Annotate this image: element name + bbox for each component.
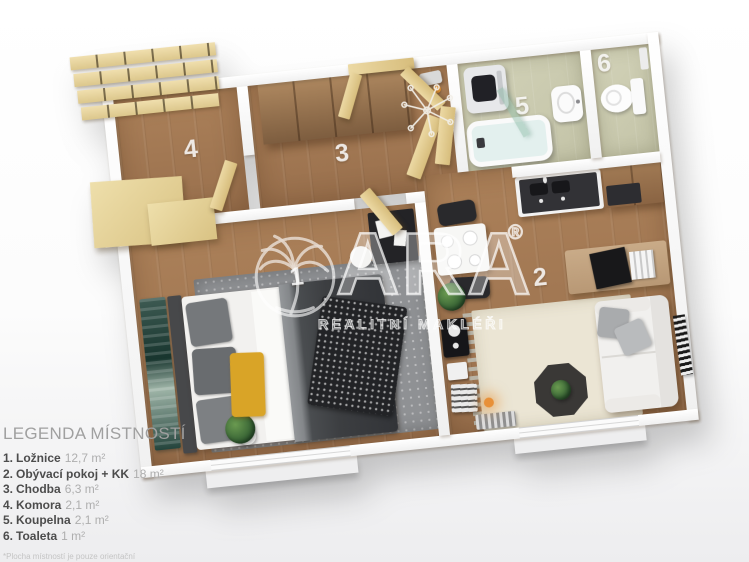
legend-item-area: 1 m² bbox=[61, 529, 85, 543]
watermark-tagline: REALITNÍ MAKLÉŘI bbox=[318, 316, 506, 332]
kitchen-sink-basin bbox=[551, 180, 570, 194]
legend-item-number: 4. bbox=[3, 498, 13, 512]
legend-item: 2.Obývací pokoj + KK18 m² bbox=[3, 467, 243, 483]
room-label-toilet: 6 bbox=[596, 49, 613, 79]
bathtub-fitting bbox=[476, 138, 485, 149]
desk-monitor bbox=[589, 247, 632, 290]
legend-item-area: 2,1 m² bbox=[75, 513, 109, 527]
legend-item: 1.Ložnice12,7 m² bbox=[3, 451, 243, 467]
ceiling-light-icon bbox=[396, 80, 458, 142]
bed-pillow-yellow bbox=[230, 352, 266, 417]
legend-title: LEGENDA MÍSTNOSTÍ bbox=[3, 424, 243, 444]
legend-item-name: Komora bbox=[16, 498, 61, 512]
legend-item-name: Ložnice bbox=[16, 451, 61, 465]
legend-rows: 1.Ložnice12,7 m² 2.Obývací pokoj + KK18 … bbox=[3, 451, 243, 544]
washing-machine-door bbox=[471, 74, 498, 102]
legend-item-name: Chodba bbox=[16, 482, 61, 496]
legend-item: 5.Koupelna2,1 m² bbox=[3, 513, 243, 529]
legend-item-area: 18 m² bbox=[133, 467, 164, 481]
watermark: ARA ® REALITNÍ MAKLÉŘI bbox=[232, 220, 552, 352]
bathroom-sink-bowl bbox=[556, 91, 576, 115]
room-label-storage: 4 bbox=[182, 135, 199, 165]
room-label-hallway: 3 bbox=[334, 139, 351, 169]
watermark-brand: ARA bbox=[336, 220, 533, 308]
legend-item-area: 6,3 m² bbox=[65, 482, 99, 496]
palm-logo-icon bbox=[246, 226, 344, 324]
bathtub bbox=[466, 114, 554, 169]
bed-pillow bbox=[185, 297, 233, 347]
legend-item-area: 2,1 m² bbox=[65, 498, 99, 512]
legend-item-number: 5. bbox=[3, 513, 13, 527]
storage-box bbox=[147, 197, 217, 246]
legend-item-name: Toaleta bbox=[16, 529, 57, 543]
legend-item-name: Obývací pokoj + KK bbox=[16, 467, 129, 481]
legend-item: 6.Toaleta1 m² bbox=[3, 529, 243, 545]
legend-item-area: 12,7 m² bbox=[65, 451, 106, 465]
toilet-bowl-inner bbox=[605, 89, 623, 107]
kitchen-cabinet-front bbox=[606, 183, 642, 206]
legend-item-number: 3. bbox=[3, 482, 13, 496]
kitchen-sink-basin bbox=[529, 182, 548, 196]
legend-item: 4.Komora2,1 m² bbox=[3, 498, 243, 514]
legend-item-name: Koupelna bbox=[16, 513, 71, 527]
legend-item: 3.Chodba6,3 m² bbox=[3, 482, 243, 498]
desk-books bbox=[629, 250, 656, 280]
legend-item-number: 1. bbox=[3, 451, 13, 465]
legend-note: *Plocha místností je pouze orientační bbox=[3, 552, 243, 561]
magazine-rack bbox=[451, 384, 478, 413]
room-legend: LEGENDA MÍSTNOSTÍ 1.Ložnice12,7 m² 2.Obý… bbox=[3, 424, 243, 561]
registered-trademark-icon: ® bbox=[508, 222, 523, 245]
media-box bbox=[447, 362, 469, 381]
bathroom-sink-faucet bbox=[576, 99, 580, 103]
room-label-bathroom: 5 bbox=[514, 92, 531, 122]
legend-item-number: 6. bbox=[3, 529, 13, 543]
bathroom-sink bbox=[550, 84, 584, 123]
legend-item-number: 2. bbox=[3, 467, 13, 481]
